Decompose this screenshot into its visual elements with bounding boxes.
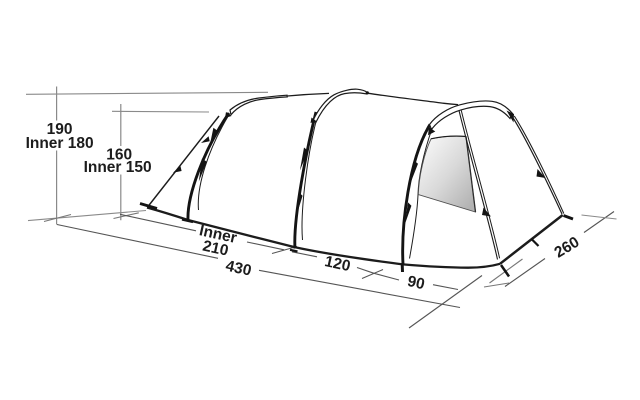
svg-text:90: 90	[406, 273, 427, 293]
svg-text:Inner 150: Inner 150	[84, 159, 152, 176]
svg-text:430: 430	[224, 258, 253, 280]
svg-text:Inner 180: Inner 180	[26, 135, 94, 152]
svg-text:260: 260	[552, 234, 583, 262]
